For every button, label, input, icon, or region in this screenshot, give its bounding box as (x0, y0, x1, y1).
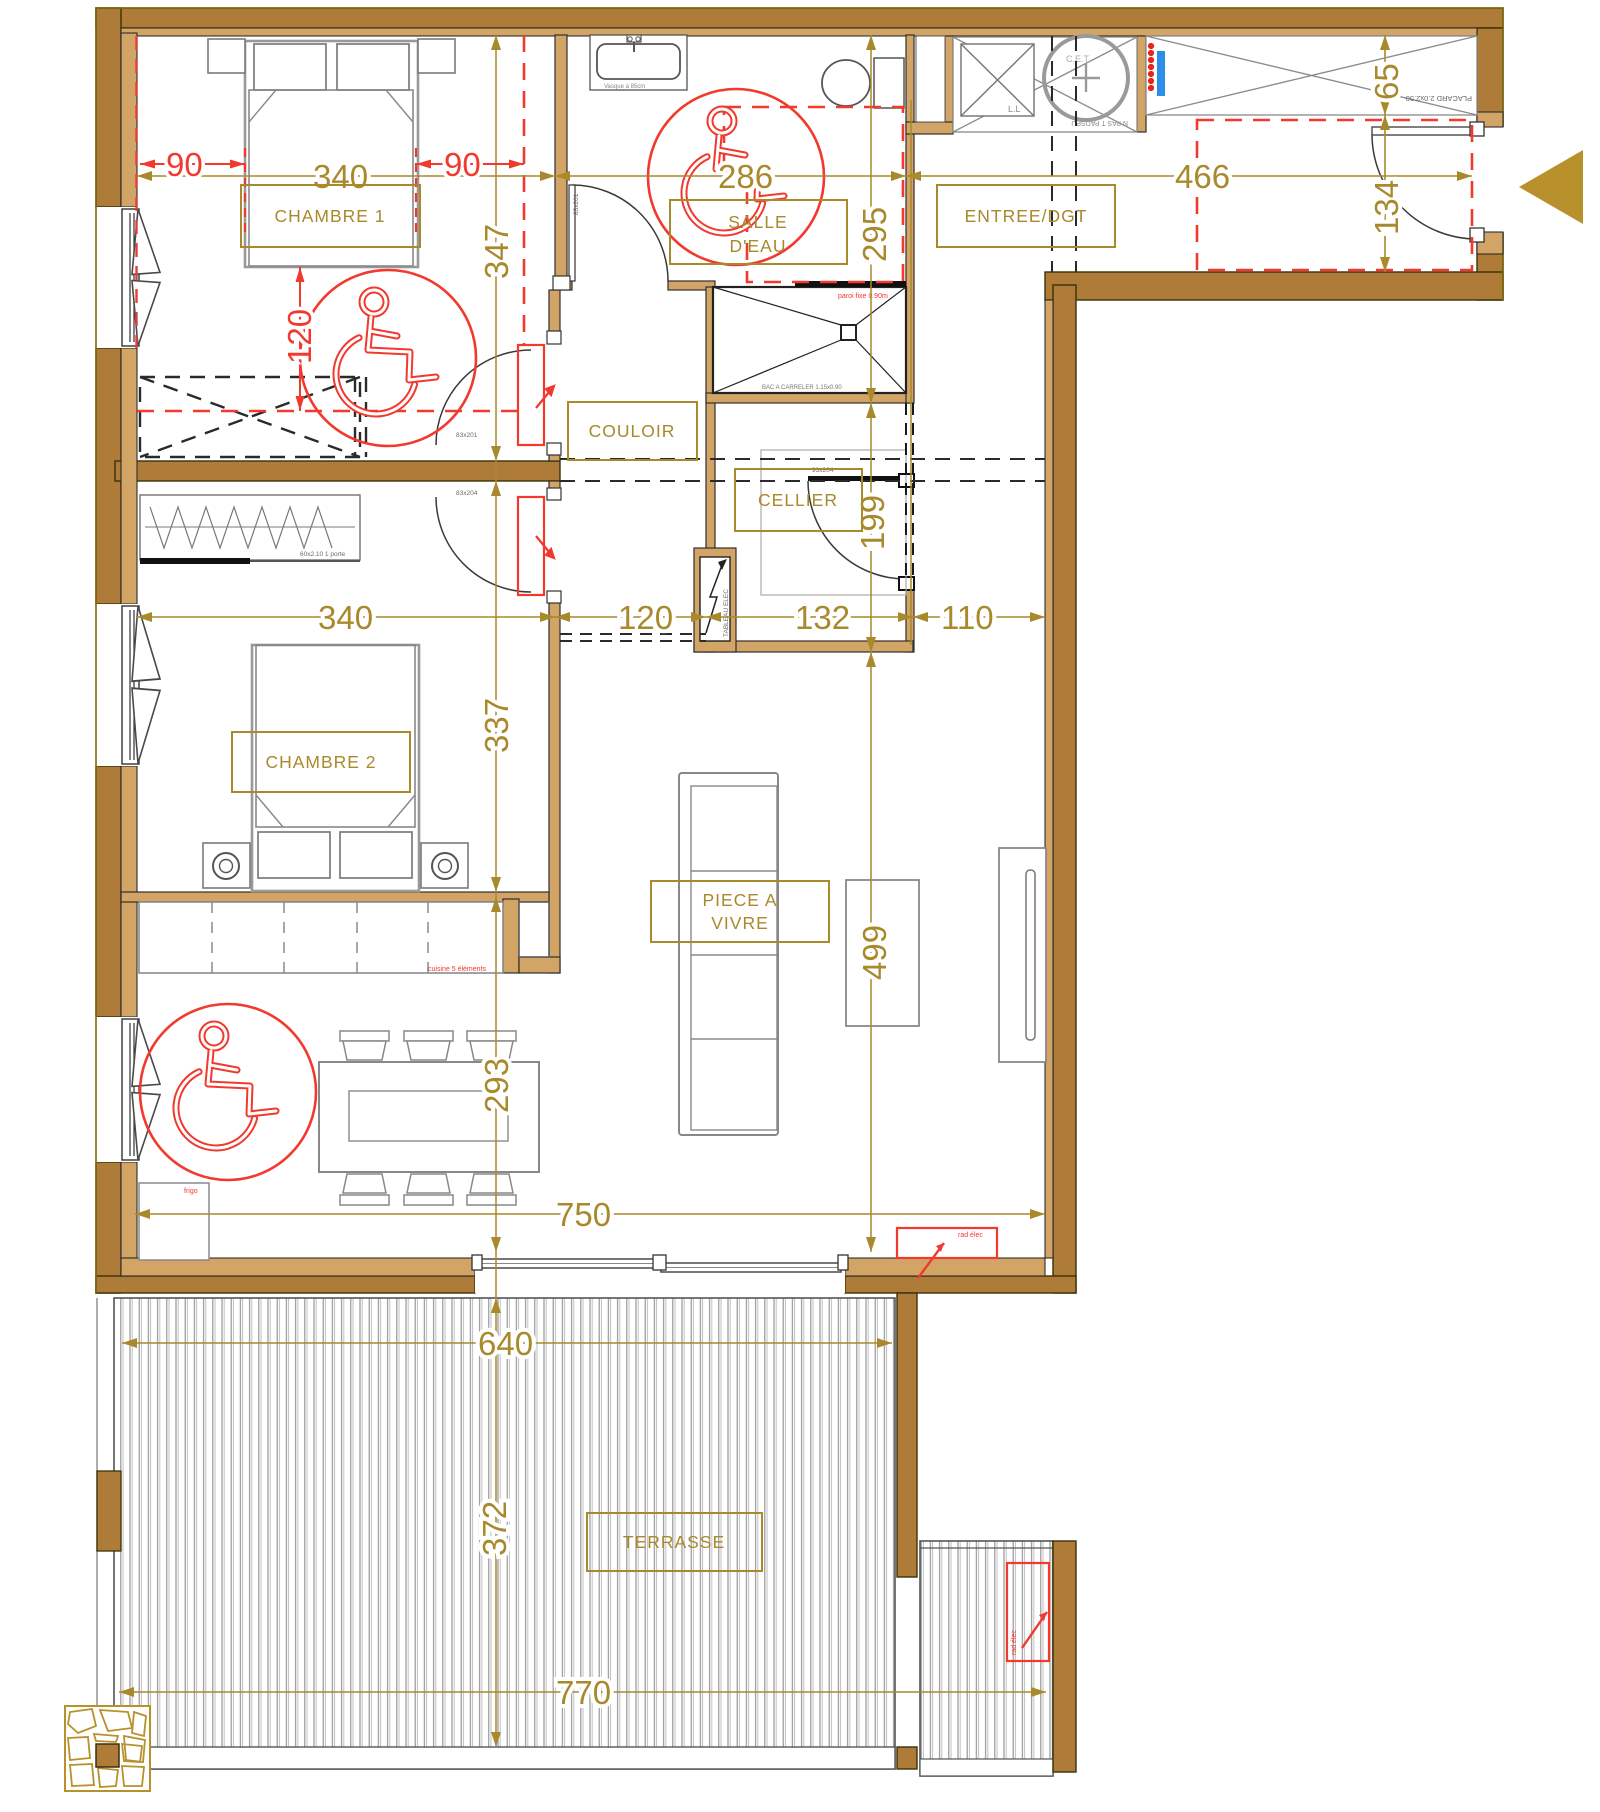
svg-text:347: 347 (478, 224, 515, 279)
svg-text:110: 110 (941, 599, 994, 636)
svg-text:120: 120 (618, 599, 673, 636)
svg-text:N PAS T PADSPU: N PAS T PADSPU (1071, 119, 1128, 126)
svg-text:TABLEAU ELEC: TABLEAU ELEC (723, 589, 730, 637)
svg-text:90: 90 (444, 146, 481, 183)
svg-text:134: 134 (1368, 180, 1405, 235)
svg-text:499: 499 (856, 925, 893, 980)
svg-text:PIECE A: PIECE A (702, 890, 777, 910)
svg-text:SALLE: SALLE (728, 212, 787, 232)
svg-text:C.E.T.: C.E.T. (1066, 54, 1091, 64)
svg-text:PLACARD 2.0x2.50: PLACARD 2.0x2.50 (1406, 94, 1472, 103)
svg-text:640: 640 (478, 1325, 533, 1362)
svg-text:770: 770 (556, 1674, 611, 1711)
svg-text:COULOIR: COULOIR (589, 421, 676, 441)
svg-text:rad élec: rad élec (958, 1232, 983, 1239)
svg-text:frigo: frigo (184, 1188, 198, 1195)
svg-text:60x2.10 1 porte: 60x2.10 1 porte (300, 551, 346, 558)
svg-text:65: 65 (1368, 63, 1405, 100)
svg-text:295: 295 (856, 207, 893, 262)
svg-text:TERRASSE: TERRASSE (623, 1532, 725, 1552)
svg-text:750: 750 (556, 1196, 611, 1233)
svg-text:CHAMBRE 1: CHAMBRE 1 (274, 206, 385, 226)
svg-text:Vasque à 85cm: Vasque à 85cm (604, 84, 645, 90)
svg-text:293: 293 (478, 1058, 515, 1113)
svg-text:BAC A CARRELER 1.15x0.90: BAC A CARRELER 1.15x0.90 (762, 385, 842, 391)
svg-text:337: 337 (478, 698, 515, 753)
svg-text:90: 90 (166, 146, 203, 183)
svg-text:L.L: L.L (1008, 104, 1021, 114)
svg-text:466: 466 (1175, 158, 1230, 195)
svg-text:rad élec: rad élec (1011, 1630, 1018, 1655)
svg-text:83x204: 83x204 (456, 490, 478, 497)
svg-text:372: 372 (476, 1501, 513, 1556)
svg-text:120: 120 (281, 309, 318, 364)
svg-text:CELLIER: CELLIER (758, 490, 838, 510)
svg-text:83x201: 83x201 (456, 432, 478, 439)
svg-text:paroi fixe 0.90m: paroi fixe 0.90m (838, 293, 888, 300)
svg-text:VIVRE: VIVRE (711, 913, 769, 933)
svg-text:286: 286 (718, 158, 773, 195)
svg-text:83x201: 83x201 (573, 193, 580, 215)
svg-text:ENTREE/DGT: ENTREE/DGT (965, 206, 1088, 226)
svg-text:340: 340 (313, 158, 368, 195)
svg-text:199: 199 (854, 495, 891, 550)
svg-text:132: 132 (795, 599, 850, 636)
svg-text:D'EAU: D'EAU (730, 236, 787, 256)
svg-text:cuisine 5 éléments: cuisine 5 éléments (428, 966, 486, 973)
svg-text:340: 340 (318, 599, 373, 636)
svg-text:CHAMBRE 2: CHAMBRE 2 (265, 752, 376, 772)
